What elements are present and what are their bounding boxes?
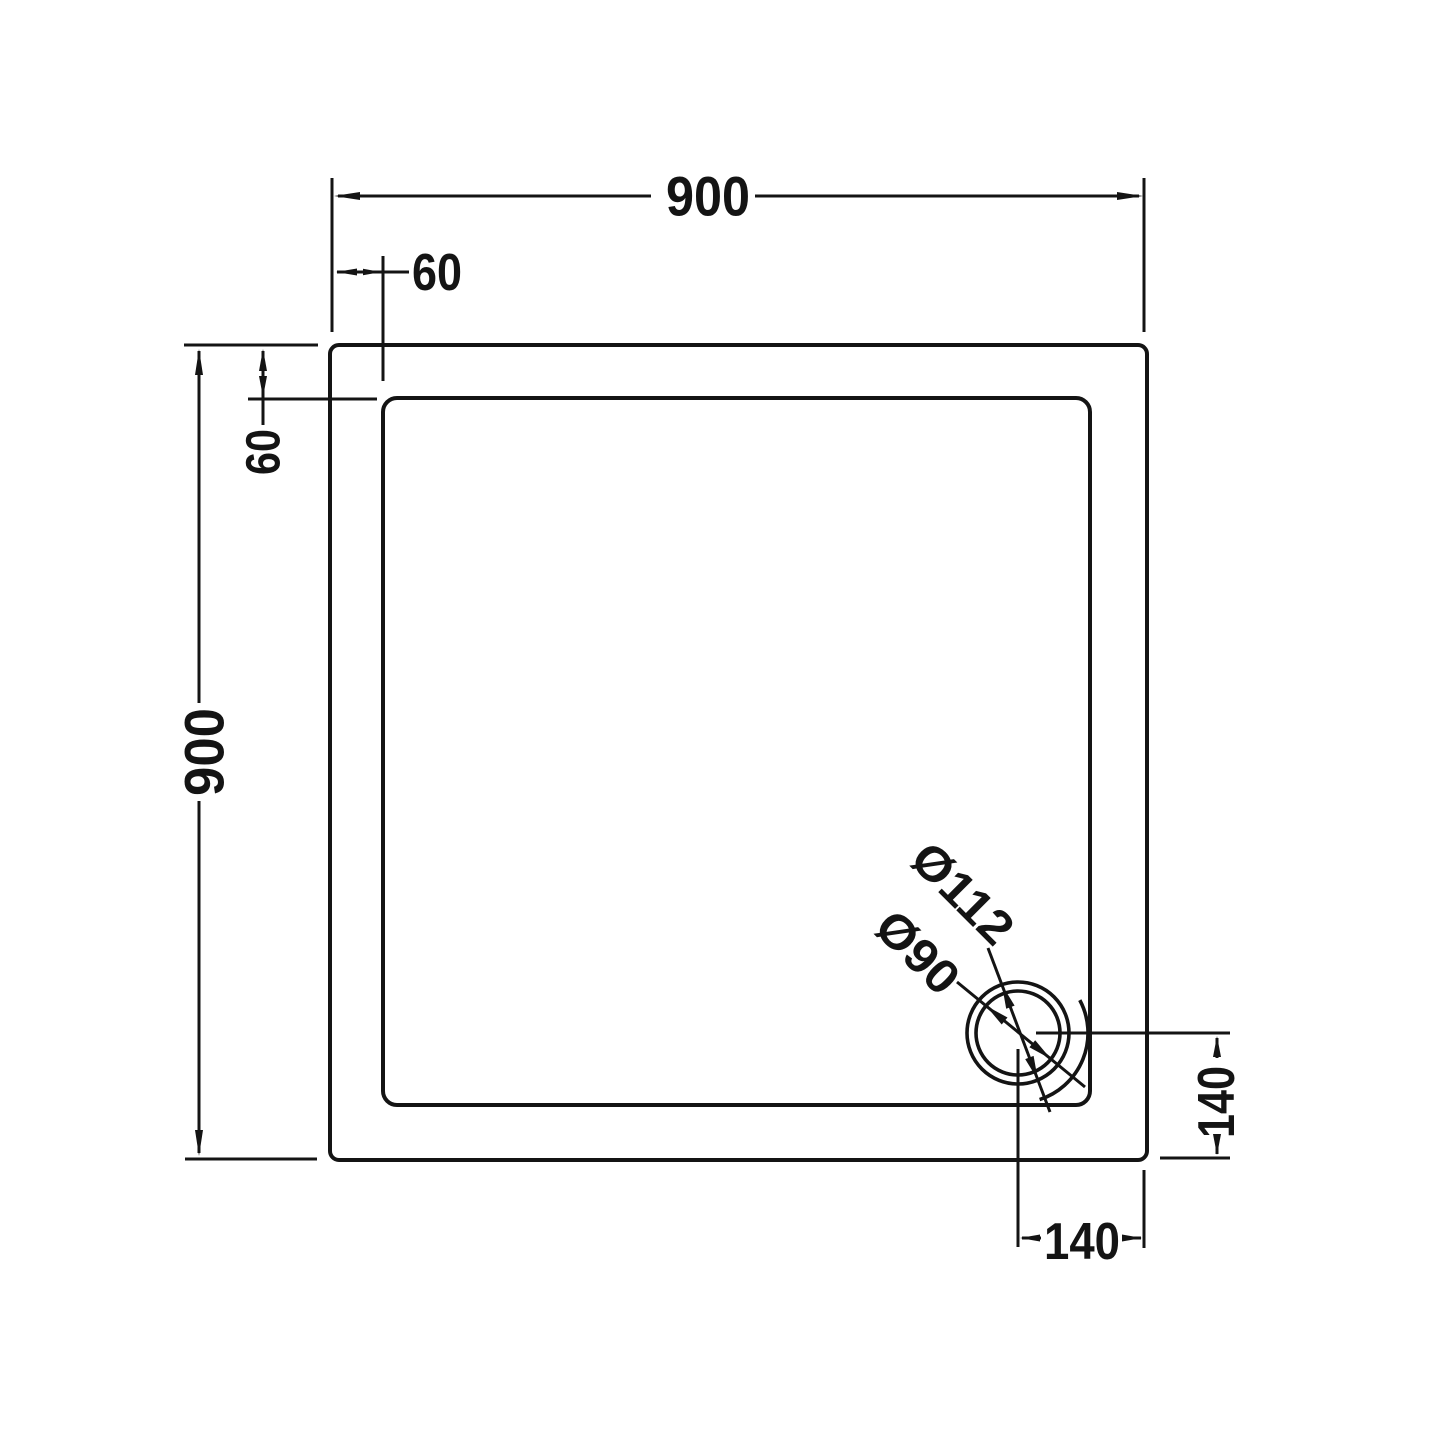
arrowhead-icon bbox=[336, 269, 357, 276]
arrowhead-icon bbox=[195, 1130, 203, 1156]
arrowhead-icon bbox=[1020, 1235, 1040, 1242]
arrowhead-icon bbox=[1117, 192, 1143, 200]
arrowhead-icon bbox=[259, 376, 267, 397]
arrowhead-icon bbox=[1002, 985, 1015, 1009]
shower-tray-technical-drawing: 900 60 900 60 140 140 Ø112 bbox=[0, 0, 1445, 1445]
arrowhead-icon bbox=[195, 349, 203, 375]
arrowhead-icon bbox=[334, 192, 360, 200]
arrowhead-icon bbox=[1213, 1036, 1221, 1057]
dim-label-top-inset: 60 bbox=[412, 244, 462, 302]
arrowhead-icon bbox=[259, 349, 267, 371]
arrowhead-icon bbox=[1025, 1056, 1038, 1080]
arrowhead-icon bbox=[363, 269, 381, 275]
drawing-canvas: 900 60 900 60 140 140 Ø112 bbox=[0, 0, 1445, 1445]
arrowhead-icon bbox=[1122, 1235, 1142, 1242]
dim-label-width-total: 900 bbox=[666, 165, 750, 228]
dim-label-left-inset: 60 bbox=[238, 429, 291, 475]
tray-inner-edge bbox=[383, 398, 1090, 1105]
dim-label-drain-offset-bottom: 140 bbox=[1044, 1213, 1120, 1271]
dim-label-drain-offset-right: 140 bbox=[1188, 1066, 1246, 1138]
dim-label-height-total: 900 bbox=[173, 708, 236, 796]
